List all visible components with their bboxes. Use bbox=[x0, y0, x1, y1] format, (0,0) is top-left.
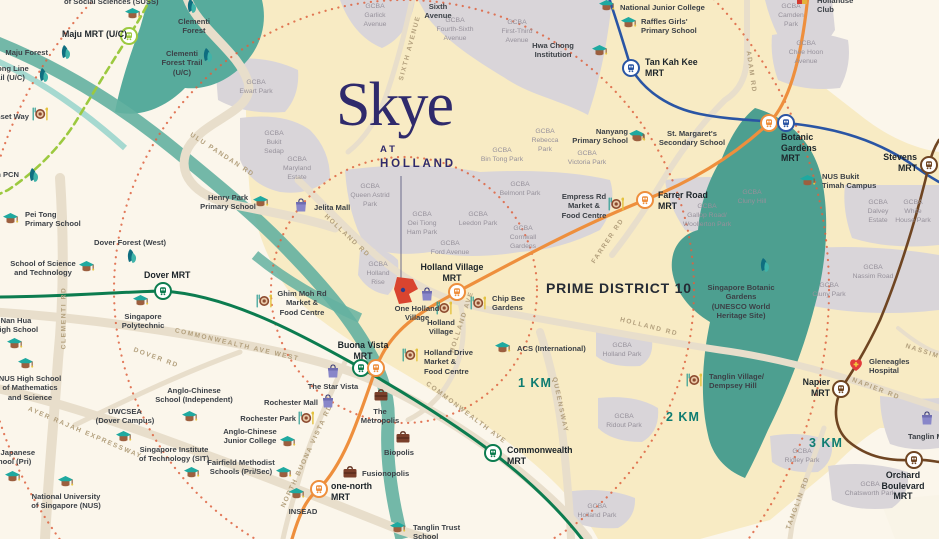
school-label: Nan Hua High School bbox=[0, 316, 38, 335]
school-label: National Junior College bbox=[620, 3, 705, 12]
school-label: Fairfield Methodist Schools (Pri/Sec) bbox=[207, 458, 275, 477]
estate-label: GCBA White House Park bbox=[895, 199, 931, 225]
park-leaf-icon bbox=[124, 249, 137, 263]
school-icon bbox=[184, 467, 200, 479]
estate-label: GCBA Fourth-Sixth Avenue bbox=[436, 17, 473, 43]
mrt-station-label: Orchard Boulevard MRT bbox=[881, 470, 924, 502]
dining-label: Sunset Way bbox=[0, 112, 29, 121]
park-label: Jurong Line Trail (U/C) bbox=[0, 64, 29, 83]
park-label: Ulu Pandan PCN bbox=[0, 170, 19, 179]
school-icon bbox=[7, 338, 23, 350]
school-icon bbox=[133, 295, 149, 307]
mrt-station-icon-thomson bbox=[905, 451, 923, 469]
school-icon bbox=[58, 476, 74, 488]
school-icon bbox=[182, 411, 198, 423]
dining-label: Ghim Moh Rd Market & Food Centre bbox=[277, 289, 326, 317]
school-label: NUS Bukit Timah Campus bbox=[822, 172, 876, 191]
district-label: PRIME DISTRICT 10 bbox=[546, 281, 692, 295]
estate-label: GCBA Bukit Sedap bbox=[264, 130, 284, 156]
dining-label: Tanglin Village/ Dempsey Hill bbox=[709, 372, 764, 391]
location-map: Skye AT HOLLAND PRIME DISTRICT 10 Maju M… bbox=[0, 0, 939, 539]
project-tagline-at: AT bbox=[380, 144, 456, 155]
mrt-station-label: Commonwealth MRT bbox=[507, 445, 573, 466]
estate-label: GCBA Camden Park bbox=[778, 3, 804, 29]
hospital-heart-icon bbox=[850, 359, 863, 371]
club-label: Hollandse Club bbox=[817, 0, 853, 15]
park-label: Dover Forest (West) bbox=[94, 238, 166, 247]
estate-label: GCBA Cornwall Gardens bbox=[510, 225, 536, 251]
dining-icon bbox=[402, 349, 418, 362]
shopping-mall-icon bbox=[921, 412, 933, 425]
estate-label: GCBA Holland Rise bbox=[366, 261, 389, 287]
dining-icon bbox=[686, 374, 702, 387]
school-label: Tanglin Trust School bbox=[413, 523, 460, 539]
park-label: Maju Forest bbox=[5, 48, 48, 57]
estate-label: GCBA Dalvey Estate bbox=[868, 199, 889, 225]
school-label: Singapore Polytechnic bbox=[122, 312, 165, 331]
shopping-mall-icon bbox=[327, 365, 339, 378]
dining-icon bbox=[298, 412, 314, 425]
mall-label: Rochester Mall bbox=[264, 398, 318, 407]
biz-label: Fusionopolis bbox=[362, 469, 409, 478]
mall-label: Jelita Mall bbox=[314, 203, 350, 212]
mrt-station-icon-circle bbox=[636, 191, 654, 209]
estate-label: GCBA Garlick Avenue bbox=[364, 3, 387, 29]
mrt-station-icon-circle bbox=[367, 359, 385, 377]
school-icon bbox=[125, 8, 141, 20]
dining-label: Holland Drive Market & Food Centre bbox=[424, 348, 473, 376]
school-label: UWCSEA (Dover Campus) bbox=[96, 407, 155, 426]
school-label: ACS (International) bbox=[517, 344, 586, 353]
distance-label: 1 KM bbox=[518, 377, 552, 390]
mrt-station-icon-circle bbox=[448, 283, 466, 301]
mall-label: The Star Vista bbox=[308, 382, 359, 391]
school-icon bbox=[5, 471, 21, 483]
estate-label: GCBA Holland Park bbox=[603, 342, 642, 360]
park-leaf-icon bbox=[26, 168, 39, 182]
estate-label: GCBA Oei Tiong Ham Park bbox=[407, 211, 437, 237]
dining-label: Rochester Park bbox=[240, 414, 296, 423]
shopping-mall-icon bbox=[421, 288, 433, 301]
school-icon bbox=[495, 342, 511, 354]
school-icon bbox=[289, 488, 305, 500]
school-label: Raffles Girls' Primary School bbox=[641, 17, 697, 36]
mrt-station-label: Farrer Road MRT bbox=[658, 190, 708, 211]
dining-label: Chip Bee Gardens bbox=[492, 294, 525, 313]
school-label: Hwa Chong Institution bbox=[532, 41, 574, 60]
estate-label: GCBA Maryland Estate bbox=[283, 156, 311, 182]
business-park-icon bbox=[397, 431, 410, 443]
shopping-mall-icon bbox=[322, 395, 334, 408]
estate-label: GCBA Ridley Park bbox=[785, 448, 820, 466]
estate-label: GCBA Leedon Park bbox=[459, 211, 498, 229]
school-label: Anglo-Chinese School (Independent) bbox=[155, 386, 233, 405]
mrt-station-icon-thomson bbox=[920, 156, 938, 174]
school-icon bbox=[280, 436, 296, 448]
school-label: Pei Tong Primary School bbox=[25, 210, 81, 229]
site-dot bbox=[401, 288, 405, 292]
mrt-station-icon-circle bbox=[760, 114, 778, 132]
estate-label: GCBA Bin Tong Park bbox=[481, 147, 523, 165]
park-label: Clementi Forest bbox=[178, 17, 210, 36]
mrt-station-label: Dover MRT bbox=[144, 270, 190, 281]
school-icon bbox=[276, 467, 292, 479]
dining-icon bbox=[32, 108, 48, 121]
school-icon bbox=[800, 175, 816, 187]
mrt-station-label: Botanic Gardens MRT bbox=[781, 132, 817, 164]
project-tagline-holland: HOLLAND bbox=[380, 158, 456, 170]
school-label: National University of Singapore (NUS) bbox=[31, 492, 101, 511]
school-label: Henry Park Primary School bbox=[200, 193, 256, 212]
school-label: of Social Sciences (SUSS) bbox=[64, 0, 159, 6]
business-park-icon bbox=[375, 389, 388, 401]
hospital-label: Gleneagles Hospital bbox=[869, 357, 910, 376]
estate-label: GCBA Cluny Park bbox=[812, 282, 845, 300]
school-icon bbox=[18, 358, 34, 370]
dining-icon bbox=[470, 297, 486, 310]
school-label: School of Science and Technology bbox=[10, 259, 75, 278]
project-name: Skye bbox=[336, 74, 456, 136]
school-icon bbox=[79, 261, 95, 273]
estate-label: GCBA Cluny Hill bbox=[738, 189, 767, 207]
school-label: The Japanese School (Pri) bbox=[0, 448, 35, 467]
park-label: Clementi Forest Trail (U/C) bbox=[162, 49, 203, 77]
park-leaf-icon bbox=[184, 0, 197, 13]
mrt-station-label: Stevens MRT bbox=[883, 152, 917, 173]
school-icon bbox=[592, 45, 608, 57]
school-icon bbox=[599, 0, 615, 12]
park-leaf-icon bbox=[757, 258, 770, 272]
biz-label: Biopolis bbox=[384, 448, 414, 457]
estate-label: GCBA Victoria Park bbox=[568, 150, 606, 168]
mrt-station-icon-eastwest bbox=[484, 444, 502, 462]
mrt-station-label: Buona Vista MRT bbox=[338, 340, 389, 361]
mrt-station-icon-downtown bbox=[622, 59, 640, 77]
dining-label: Empress Rd Market & Food Centre bbox=[562, 192, 607, 220]
school-icon bbox=[390, 522, 406, 534]
estate-label: GCBA First-Third Avenue bbox=[502, 19, 533, 45]
estate-label: GCBA Ford Avenue bbox=[431, 240, 469, 258]
mrt-station-label: Maju MRT (U/C) bbox=[62, 29, 127, 40]
park-leaf-icon bbox=[36, 68, 49, 82]
estate-label: GCBA Nassim Road bbox=[853, 264, 894, 282]
school-icon bbox=[116, 431, 132, 443]
school-label: Nanyang Primary School bbox=[572, 127, 628, 146]
mrt-station-label: Holland Village MRT bbox=[421, 262, 484, 283]
mall-label: One Holland Village bbox=[395, 304, 440, 323]
mrt-station-icon-downtown bbox=[777, 114, 795, 132]
dining-icon bbox=[256, 295, 272, 308]
shopping-mall-icon bbox=[295, 199, 307, 212]
dining-icon bbox=[608, 198, 624, 211]
club-flag-icon bbox=[797, 0, 807, 4]
estate-label: GCBA Chee Hoon Avenue bbox=[789, 40, 823, 66]
project-logo: Skye AT HOLLAND bbox=[336, 74, 456, 170]
estate-label: GCBA Ridout Park bbox=[606, 413, 642, 431]
school-icon bbox=[629, 130, 645, 142]
distance-label: 3 KM bbox=[809, 437, 843, 450]
school-label: INSEAD bbox=[289, 507, 318, 516]
text-label: Sixth Avenue bbox=[424, 2, 451, 21]
estate-label: GCBA Holland Park bbox=[578, 503, 617, 521]
estate-label: GCBA Ewart Park bbox=[239, 79, 272, 97]
park-label: Singapore Botanic Gardens (UNESCO World … bbox=[707, 283, 774, 320]
mrt-station-icon-thomson bbox=[832, 380, 850, 398]
school-label: Singapore Institute of Technology (SIT) bbox=[139, 445, 209, 464]
park-leaf-icon bbox=[58, 45, 71, 59]
mrt-station-label: one-north MRT bbox=[331, 481, 372, 502]
mrt-station-icon-circle bbox=[310, 480, 328, 498]
mrt-station-icon-eastwest bbox=[154, 282, 172, 300]
school-icon bbox=[3, 213, 19, 225]
mrt-station-label: Napier MRT bbox=[803, 377, 830, 398]
school-icon bbox=[621, 17, 637, 29]
estate-label: GCBA Rebecca Park bbox=[532, 128, 559, 154]
school-label: St. Margaret's Secondary School bbox=[659, 129, 725, 148]
distance-label: 2 KM bbox=[666, 411, 700, 424]
road-label: CLEMENTI RD bbox=[61, 287, 68, 350]
estate-label: GCBA Queen Astrid Park bbox=[350, 183, 389, 209]
biz-label: The Metropolis bbox=[361, 407, 399, 426]
mall-label: Tanglin Mall bbox=[908, 432, 939, 441]
estate-label: GCBA Belmont Park bbox=[500, 181, 541, 199]
business-park-icon bbox=[344, 466, 357, 478]
mrt-station-label: Tan Kah Kee MRT bbox=[645, 57, 698, 78]
school-label: Anglo-Chinese Junior College bbox=[223, 427, 277, 446]
school-label: NUS High School of Mathematics and Scien… bbox=[0, 374, 61, 402]
